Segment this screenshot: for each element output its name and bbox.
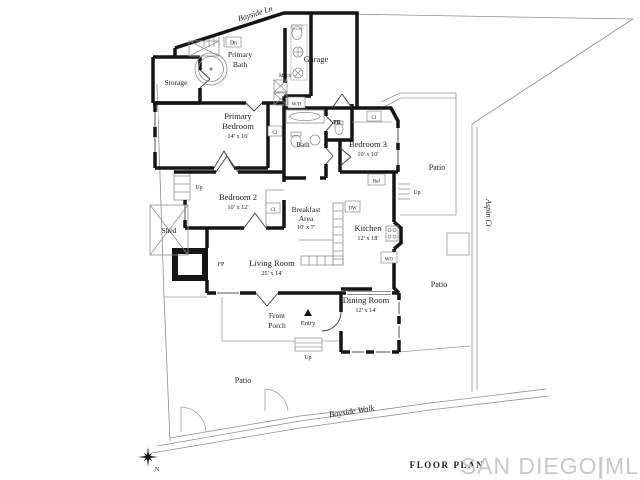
garage-door	[332, 94, 352, 108]
room-dims-kitchen: 12' x 18'	[357, 235, 378, 242]
porch-step-treads	[295, 343, 322, 347]
compass-north-label: N	[155, 466, 160, 473]
street-label-aspin-ct: Aspin Ct	[484, 198, 493, 228]
room-label-breakfast-1: Breakfast	[292, 205, 322, 214]
tub-icon-hall-bath	[286, 110, 324, 123]
entry-marker-icon	[304, 309, 312, 316]
toilet-icon-primary	[292, 27, 302, 40]
room-dims-breakfast: 10' x 7'	[297, 224, 315, 231]
anno-dw: DW	[348, 207, 357, 212]
anno-dn: Dn	[230, 41, 237, 47]
west-boundary	[157, 84, 170, 441]
stairs-up-east	[398, 184, 410, 199]
primary-bath-door	[246, 103, 262, 111]
room-label-breakfast-2: Area	[299, 214, 314, 223]
room-dims-bedroom3: 10' x 10'	[357, 151, 378, 158]
room-label-kitchen: Kitchen	[355, 223, 383, 233]
mls-brand-logo: SAN DIEGO|MLS	[461, 453, 640, 479]
storage-door	[200, 70, 210, 88]
room-dims-dining-room: 12' x 14'	[355, 307, 376, 314]
fireplace	[172, 248, 208, 281]
street-label-bayside-walk: Bayside Walk	[328, 403, 375, 420]
floor-plan-drawing: Bayside Ln Bayside Walk Aspin Ct N Stora…	[0, 0, 640, 480]
room-label-bedroom2: Bedroom 2	[219, 192, 257, 202]
range-icon	[386, 226, 398, 241]
room-label-primary-bath-1: Primary	[228, 50, 252, 59]
room-label-front-porch-1: Front	[269, 311, 286, 320]
anno-up-west: Up	[195, 185, 202, 191]
room-dims-primary-bedroom: 14' x 16'	[227, 133, 248, 140]
room-label-front-porch-2: Porch	[268, 321, 286, 330]
sink-icon-hall-bath	[310, 135, 320, 145]
room-dims-bedroom2: 10' x 12'	[227, 204, 248, 211]
room-label-patio-northeast: Patio	[429, 163, 445, 172]
anno-wd: W/D	[292, 103, 302, 108]
gate-swing-arc-1	[181, 407, 206, 432]
room-label-bedroom3: Bedroom 3	[349, 139, 387, 149]
anno-cl-primary: Cl	[272, 130, 278, 136]
brand-divider: |	[598, 453, 605, 479]
room-label-entry: Entry	[301, 320, 316, 327]
room-label-patio-southwest: Patio	[235, 376, 251, 385]
east-boundary	[472, 19, 633, 392]
anno-fp: FP	[218, 262, 224, 268]
anno-ref: Ref	[373, 180, 380, 185]
room-label-dining-room: Dining Room	[343, 295, 390, 305]
living-hall-door	[244, 213, 266, 228]
kitchen-east-wall	[394, 172, 401, 293]
brand-part2: MLS	[605, 453, 640, 479]
kitchen-counter-short	[301, 256, 343, 265]
room-label-patio-east: Patio	[431, 280, 447, 289]
dining-door-arc	[322, 312, 341, 331]
floor-plan-page: Bayside Ln Bayside Walk Aspin Ct N Stora…	[0, 0, 640, 480]
room-label-primary-bedroom-2: Bedroom	[222, 121, 254, 131]
anno-cl-bedroom2: Cl	[270, 207, 276, 213]
anno-cl-bedroom3: Cl	[371, 115, 377, 121]
room-dims-living-room: 25' x 14'	[261, 270, 282, 277]
anno-wo: WO	[385, 258, 394, 263]
room-label-garage: Garage	[304, 54, 329, 64]
room-label-primary-bedroom-1: Primary	[224, 111, 252, 121]
front-door	[256, 293, 278, 306]
bayside-walk-edges	[152, 389, 549, 453]
anno-mech: Mech	[279, 73, 292, 79]
patio-east-fence	[399, 346, 470, 352]
anno-up-east: Up	[413, 190, 420, 196]
porch-steps	[295, 338, 322, 351]
street-label-bayside-ln: Bayside Ln	[237, 4, 274, 23]
property-boundary-lines	[152, 13, 633, 453]
patio-east-planter	[447, 233, 469, 255]
room-label-bath: Bath	[296, 141, 310, 149]
room-label-storage: Storage	[165, 78, 189, 87]
powder-room-door	[326, 116, 333, 131]
compass-rose-icon	[138, 447, 158, 467]
room-label-living-room: Living Room	[249, 258, 295, 268]
anno-up-porch: Up	[304, 355, 311, 361]
brand-part1: SAN DIEGO	[461, 453, 598, 479]
room-label-shed: Shed	[162, 226, 177, 235]
gate-swing-arc-2	[265, 389, 288, 411]
bath-door	[326, 148, 333, 164]
room-label-primary-bath-2: Bath	[233, 60, 247, 69]
room-label-pr: PR	[333, 120, 342, 126]
primary-bedroom-door	[214, 151, 234, 168]
